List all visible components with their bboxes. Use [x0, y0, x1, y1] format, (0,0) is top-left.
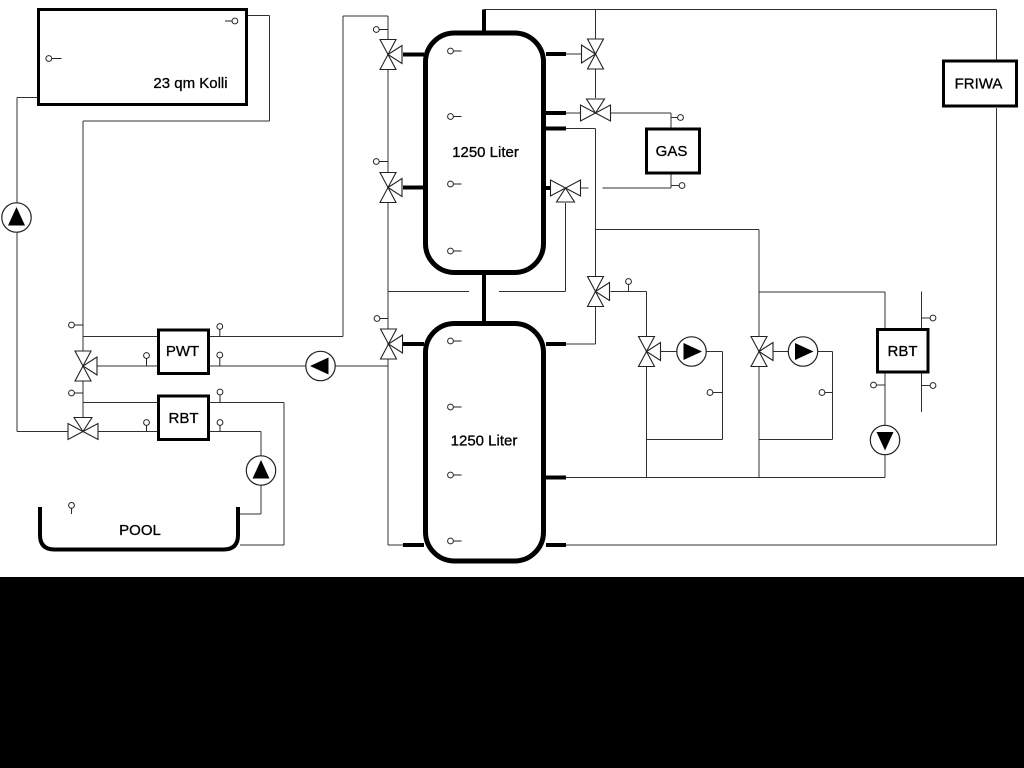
svg-text:RBT: RBT	[888, 343, 918, 360]
svg-text:23 qm Kolli: 23 qm Kolli	[153, 75, 227, 92]
svg-text:POOL: POOL	[119, 522, 161, 539]
svg-text:GAS: GAS	[656, 143, 688, 160]
svg-text:PWT: PWT	[166, 343, 199, 360]
svg-text:1250 Liter: 1250 Liter	[452, 144, 519, 161]
svg-text:RBT: RBT	[169, 410, 199, 427]
svg-text:1250 Liter: 1250 Liter	[451, 433, 518, 450]
svg-text:FRIWA: FRIWA	[955, 76, 1003, 93]
